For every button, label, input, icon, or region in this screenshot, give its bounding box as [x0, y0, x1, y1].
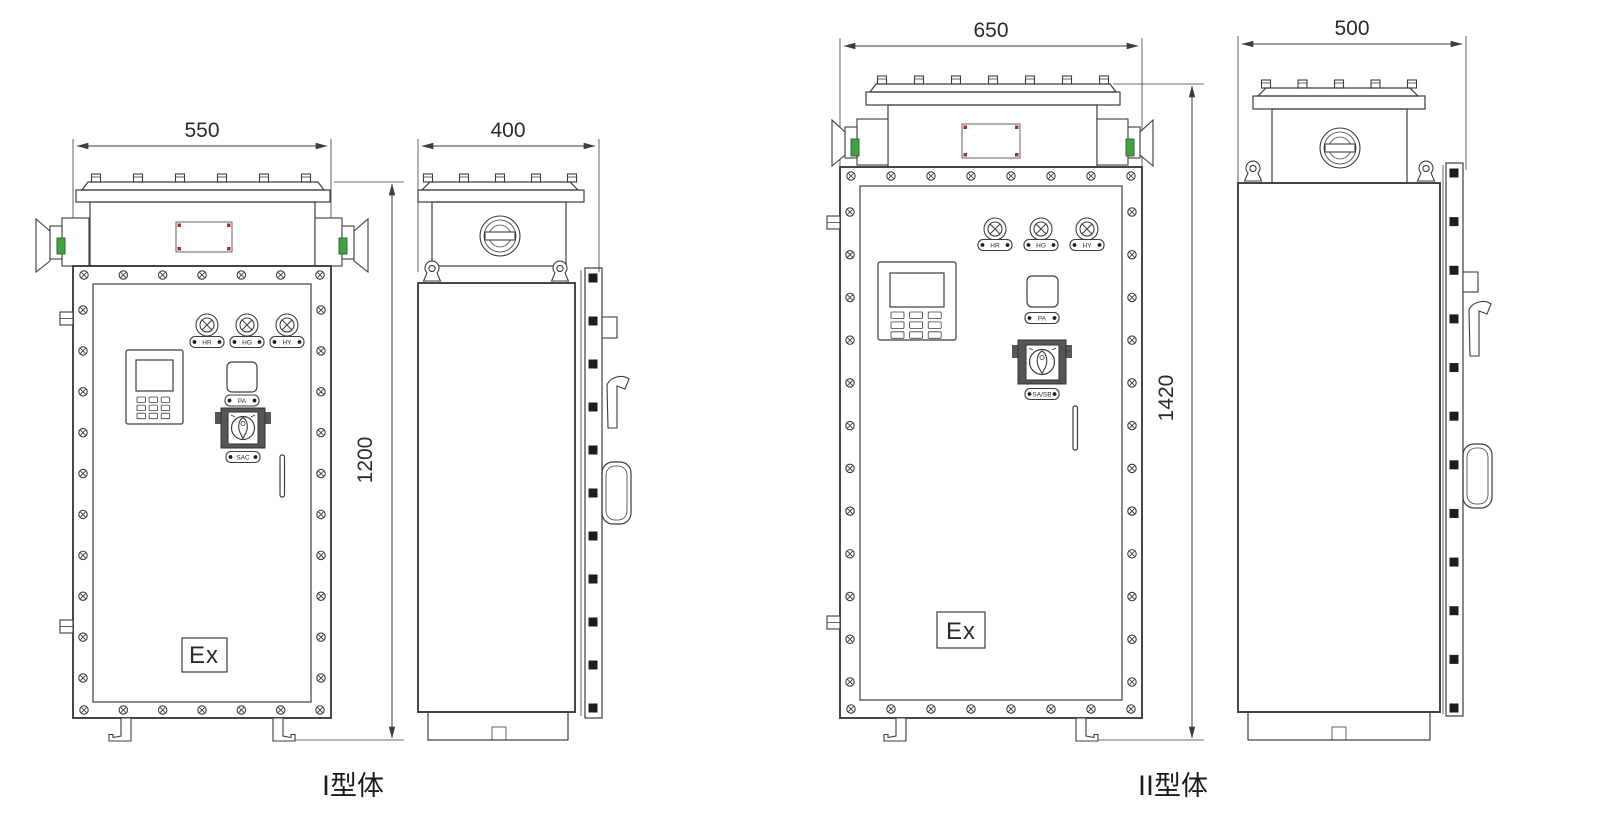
pa-label: PA [238, 398, 247, 405]
lifting-eye-icon [552, 261, 569, 281]
latch-tab [1463, 272, 1478, 292]
light-label-hg: HG [1036, 243, 1046, 250]
display-panel [126, 350, 183, 424]
base-pedestal [428, 712, 568, 740]
terminal-nameplate [962, 124, 1020, 158]
lid-bolt-row [878, 76, 1109, 84]
terminal-box [888, 105, 1097, 167]
light-label-hg: HG [242, 340, 252, 347]
type1-front-view: 550 1200 [36, 119, 404, 741]
indicator-lights: HR HG HY [190, 314, 304, 348]
cabinet-body [1238, 163, 1492, 716]
lid [1253, 80, 1425, 109]
type2-front-height-dimension: 1420 [1090, 84, 1204, 740]
dim-400-label: 400 [490, 119, 525, 142]
door-latch [607, 377, 629, 428]
dim-1420-label: 1420 [1155, 375, 1178, 422]
lifting-eye-icon [424, 261, 441, 281]
dim-1200-label: 1200 [354, 437, 377, 484]
technical-drawing: 550 1200 [0, 0, 1616, 834]
light-label-hy: HY [282, 340, 292, 347]
hinge-column [1450, 169, 1459, 713]
latch-tab [602, 317, 617, 338]
rotary-switch-sasb: SA/SB [1012, 340, 1072, 400]
dim-650-label: 650 [973, 19, 1008, 42]
rotary-switch-sac: SAC [215, 408, 271, 463]
cable-gland-right [1097, 119, 1153, 166]
door-latch [1469, 302, 1491, 356]
terminal-box [90, 202, 315, 266]
bolt-col-left [79, 306, 87, 682]
type1-front-width-dimension: 550 [73, 119, 331, 268]
drawing-canvas: 550 1200 [0, 0, 1616, 834]
pa-button: PA [1025, 276, 1059, 324]
bolt-col-left [846, 208, 854, 686]
cable-gland-right [315, 218, 368, 272]
ex-label: Ex [189, 642, 219, 669]
indicator-light-hy [1076, 218, 1098, 240]
display-screen [136, 360, 173, 391]
lid-bolt-row [424, 174, 577, 182]
dim-550-label: 550 [184, 119, 219, 142]
terminal-nameplate [176, 222, 232, 252]
type2-side-view: 500 [1238, 17, 1492, 740]
lifting-eye-icon [1245, 161, 1262, 181]
sasb-label: SA/SB [1032, 392, 1051, 399]
terminal-box [432, 202, 566, 266]
light-label-hy: HY [1082, 243, 1092, 250]
lid-bolt-row [1262, 80, 1417, 88]
mounting-foot-left [109, 718, 131, 741]
lifting-eye-icon [1418, 161, 1435, 181]
door-latch-slot [1073, 406, 1078, 450]
light-label-hr: HR [990, 243, 1000, 250]
bolt-col-right [1128, 208, 1136, 686]
mounting-foot-left [884, 718, 906, 741]
door-latch-slot [280, 455, 285, 497]
indicator-lights: HR HG HY [978, 218, 1104, 251]
bolt-col-right [317, 306, 325, 682]
bolt-row-top [847, 172, 1135, 180]
bolt-row-bottom [847, 705, 1135, 713]
indicator-light-hr [984, 218, 1006, 240]
lid [418, 174, 584, 202]
lid-bolt-row [92, 174, 311, 182]
hinge-column [589, 274, 598, 713]
indicator-light-hr [196, 314, 218, 336]
bolt-row-top [80, 271, 324, 279]
mounting-foot-right [273, 718, 295, 741]
type2-front-view: 650 1420 [827, 19, 1204, 741]
type1-side-view: 400 [418, 119, 631, 740]
bolt-row-bottom [80, 706, 324, 714]
dim-500-label: 500 [1334, 17, 1369, 40]
sac-label: SAC [236, 455, 250, 462]
cable-gland-left [36, 218, 89, 272]
terminal-box [1272, 109, 1407, 183]
light-label-hr: HR [202, 340, 212, 347]
cabinet-body [418, 268, 631, 718]
display-panel [878, 262, 956, 340]
cable-gland-left [832, 119, 888, 166]
lid [76, 174, 330, 202]
ex-marking: Ex [182, 638, 227, 672]
base-pedestal [1248, 712, 1430, 740]
pa-label: PA [1038, 316, 1047, 323]
keypad [891, 312, 941, 338]
door-flange [1446, 163, 1463, 716]
caption-type2: II型体 [1138, 771, 1208, 802]
indicator-light-hg [1030, 218, 1052, 240]
keypad [137, 397, 170, 419]
indicator-light-hy [276, 314, 298, 336]
mounting-foot-right [1076, 718, 1098, 741]
caption-type1: I型体 [322, 771, 384, 802]
ex-marking: Ex [937, 612, 985, 648]
display-screen [890, 273, 944, 307]
indicator-light-hg [236, 314, 258, 336]
lid [866, 76, 1120, 105]
pa-button: PA [225, 362, 259, 406]
ex-label: Ex [946, 618, 976, 645]
